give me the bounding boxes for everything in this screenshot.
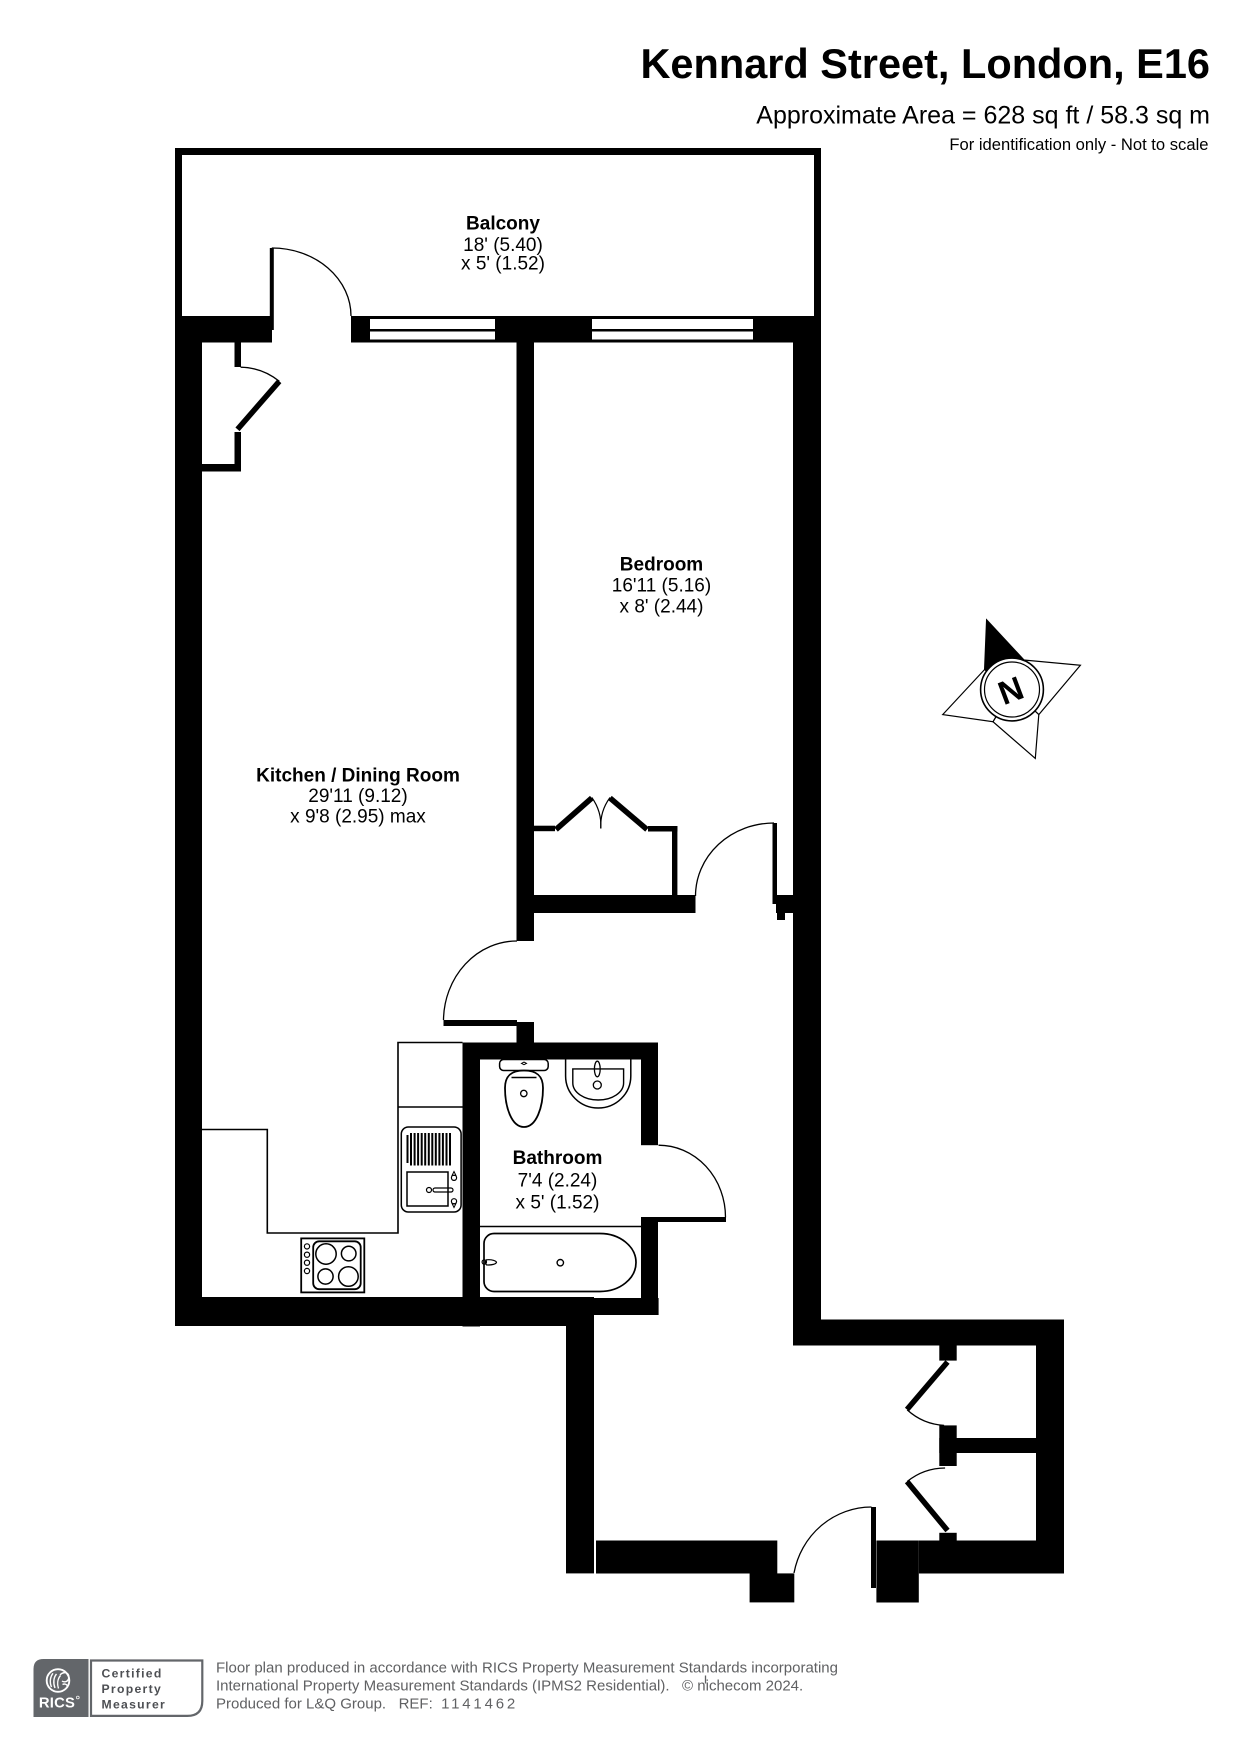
svg-text:Floor plan produced in accorda: Floor plan produced in accordance with R… xyxy=(216,1660,838,1677)
svg-text:Kennard Street, London, E16: Kennard Street, London, E16 xyxy=(640,40,1210,87)
svg-text:x 8' (2.44): x 8' (2.44) xyxy=(620,596,704,617)
svg-text:Approximate Area = 628 sq ft /: Approximate Area = 628 sq ft / 58.3 sq m xyxy=(756,102,1210,130)
svg-text:29'11 (9.12): 29'11 (9.12) xyxy=(308,786,407,807)
svg-text:Bathroom: Bathroom xyxy=(513,1148,603,1169)
svg-text:Certified: Certified xyxy=(102,1666,163,1680)
svg-text:x 5' (1.52): x 5' (1.52) xyxy=(516,1192,600,1213)
svg-text:Produced for L&Q Group. REF:: Produced for L&Q Group. REF: 1141462 xyxy=(216,1695,518,1712)
svg-text:Property: Property xyxy=(102,1682,163,1696)
svg-text:x 9'8 (2.95) max: x 9'8 (2.95) max xyxy=(290,807,426,828)
svg-text:RICS: RICS xyxy=(39,1696,75,1712)
svg-text:International Property Measure: International Property Measurement Stand… xyxy=(216,1678,803,1695)
svg-text:For identification only - Not: For identification only - Not to scale xyxy=(949,135,1208,154)
svg-text:7'4 (2.24): 7'4 (2.24) xyxy=(518,1171,598,1192)
svg-text:Bedroom: Bedroom xyxy=(620,554,703,575)
svg-text:Kitchen / Dining Room: Kitchen / Dining Room xyxy=(256,765,460,786)
svg-text:Measurer: Measurer xyxy=(102,1698,167,1712)
svg-text:16'11 (5.16): 16'11 (5.16) xyxy=(612,575,711,596)
svg-text:x 5' (1.52): x 5' (1.52) xyxy=(461,254,545,275)
svg-text:Balcony: Balcony xyxy=(466,213,540,234)
